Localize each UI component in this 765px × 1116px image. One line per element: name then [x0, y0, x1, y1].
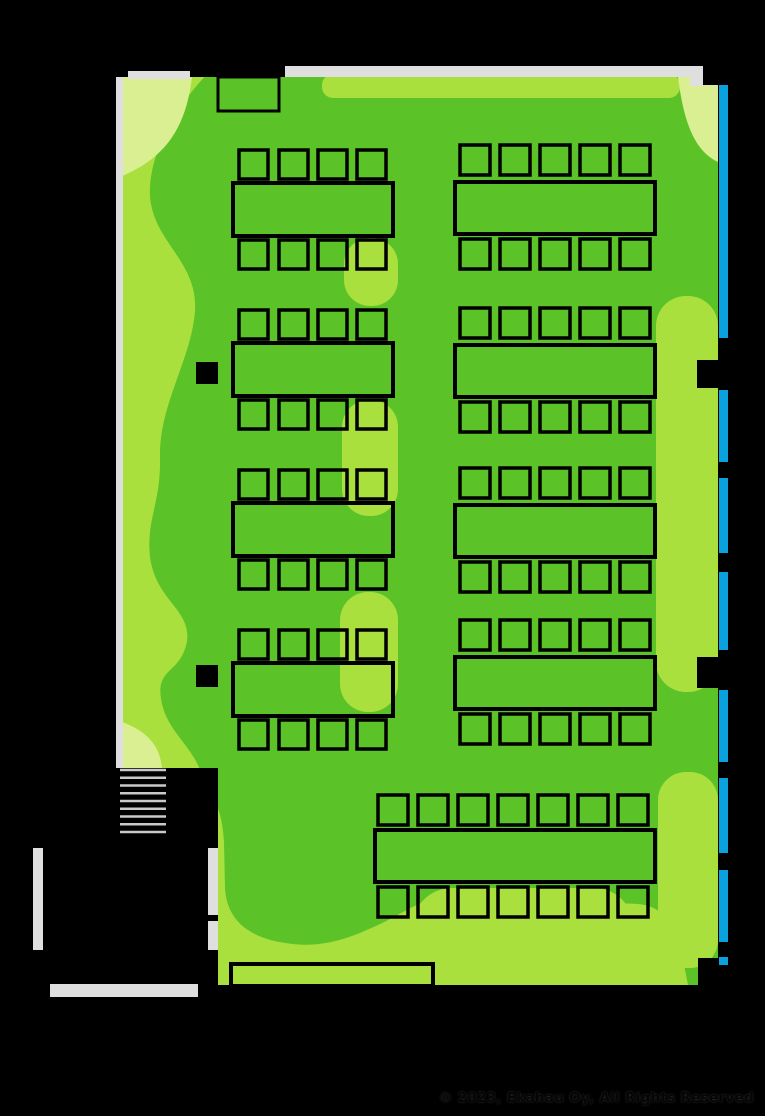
- heatmap-region-medium: [412, 888, 634, 998]
- wall-segment: [208, 848, 218, 915]
- window-strip: [719, 390, 728, 462]
- floorplan-svg: [0, 0, 765, 1116]
- window-strip: [719, 85, 728, 338]
- wall-segment: [208, 921, 218, 950]
- wifi-heatmap-floorplan: © 2023, Ekahau Oy, All Rights Reserved: [0, 0, 765, 1116]
- heatmap-region-medium: [656, 296, 718, 692]
- wall-segment: [285, 66, 703, 77]
- heatmap-region-medium: [658, 772, 718, 968]
- pillar: [697, 360, 719, 388]
- window-strip: [719, 957, 728, 965]
- wall-segment: [33, 848, 43, 950]
- pillar: [196, 665, 218, 687]
- pillar: [196, 362, 218, 384]
- wall-segment: [50, 984, 198, 997]
- window-strip: [719, 778, 728, 853]
- copyright-text: © 2023, Ekahau Oy, All Rights Reserved: [439, 1090, 754, 1106]
- window-strip: [719, 572, 728, 650]
- heatmap-region-medium: [322, 74, 680, 98]
- wall-segment: [690, 66, 703, 86]
- wall-segment: [116, 77, 123, 768]
- pillar: [697, 657, 719, 688]
- heatmap-region-medium: [344, 238, 398, 306]
- wall-notch: [703, 66, 719, 85]
- window-strip: [719, 478, 728, 553]
- window-strip: [719, 870, 728, 942]
- window-strip: [719, 690, 728, 762]
- wall-segment: [128, 71, 190, 79]
